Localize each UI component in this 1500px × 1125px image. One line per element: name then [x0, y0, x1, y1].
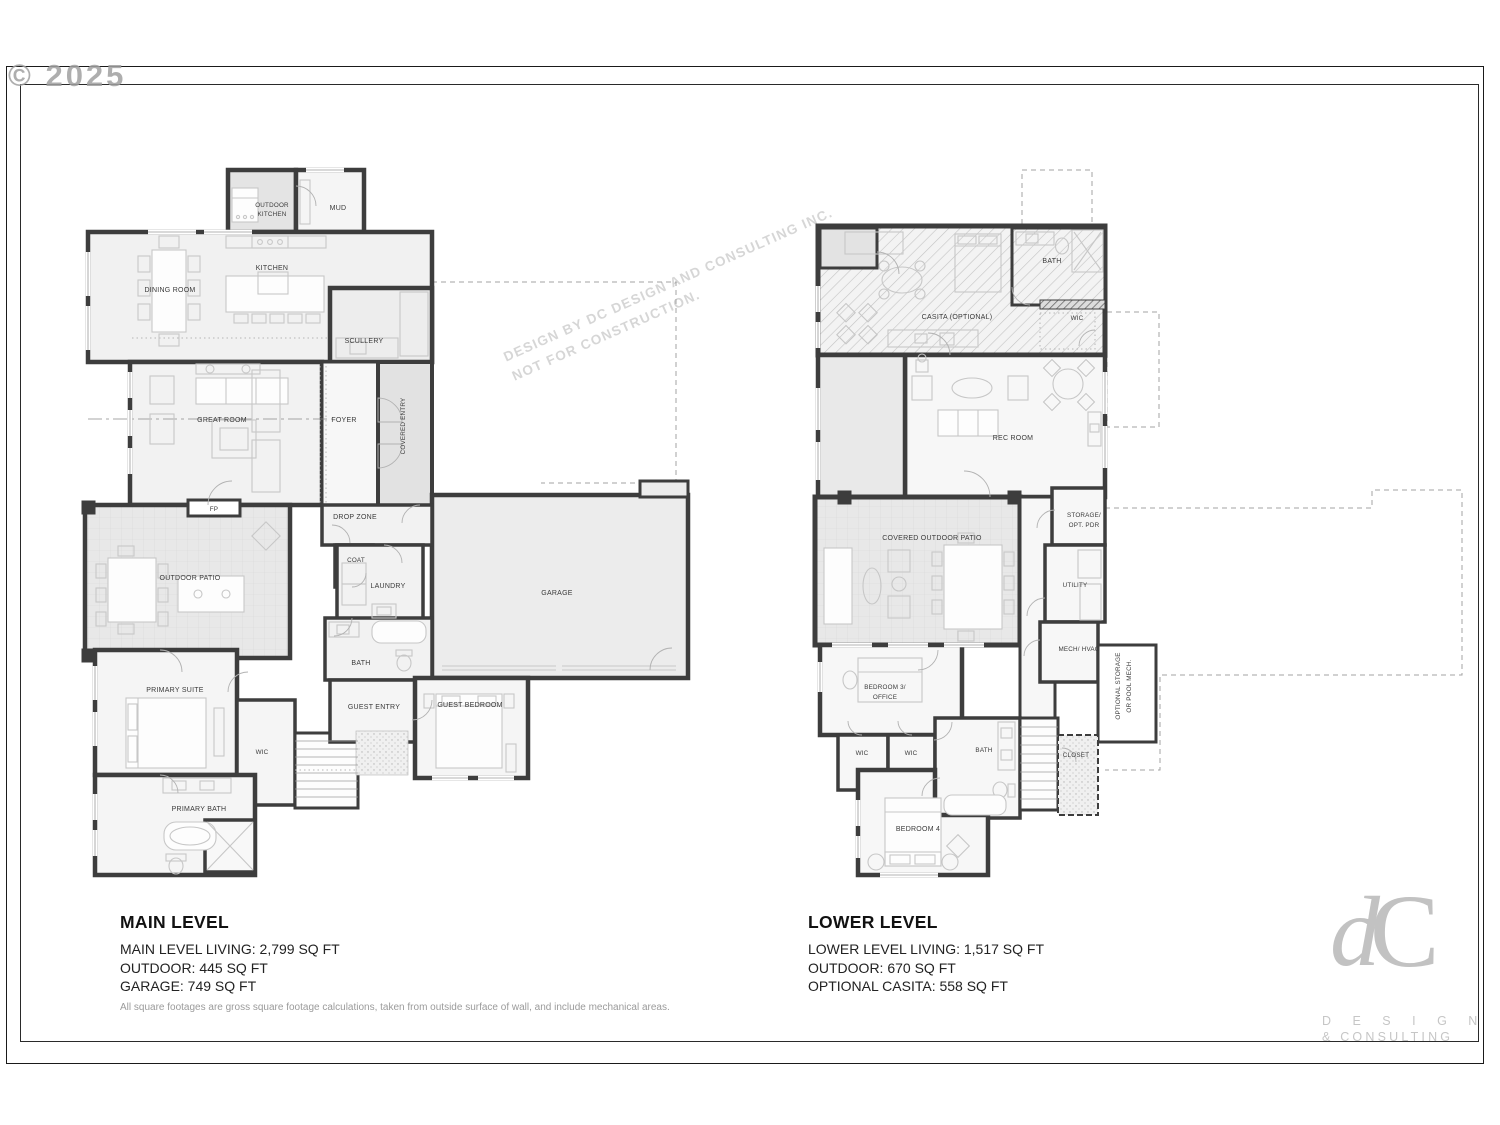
primary-bath-label: PRIMARY BATH	[172, 806, 227, 813]
kitchen-label: KITCHEN	[256, 265, 288, 272]
bedroom4-label: BEDROOM 4	[896, 826, 940, 833]
laundry-label: LAUNDRY	[370, 583, 405, 590]
covered-outdoor-patio-label: COVERED OUTDOOR PATIO	[882, 535, 982, 542]
drop-zone-label: DROP ZONE	[333, 514, 377, 521]
guest-entry-tile-floor	[356, 731, 408, 775]
bedroom3-label2: OFFICE	[873, 694, 897, 701]
scullery-label: SCULLERY	[345, 338, 384, 345]
outdoor-patio-label: OUTDOOR PATIO	[160, 575, 221, 582]
main-roof-dashed-outline	[432, 282, 676, 483]
lower-level-title: LOWER LEVEL	[808, 912, 1368, 933]
bedroom3-label1: BEDROOM 3/	[864, 684, 906, 691]
lower-level-stats-block: LOWER LEVEL LOWER LEVEL LIVING: 1,517 SQ…	[808, 912, 1368, 996]
lower-dashed-box-top	[1022, 170, 1092, 226]
lower-site-dashed-outline	[1105, 490, 1462, 770]
main-level-title: MAIN LEVEL	[120, 912, 680, 933]
guest-bedroom-label: GUEST BEDROOM	[437, 702, 502, 709]
fp-label: FP	[210, 506, 218, 513]
garage-label: GARAGE	[541, 590, 573, 597]
logo-letter-c: C	[1370, 872, 1439, 991]
utility-label: UTILITY	[1063, 582, 1088, 589]
coat-label: COAT	[347, 557, 365, 564]
dining-room-label: DINING ROOM	[145, 287, 196, 294]
plan-sheet: © 2025 DESIGN BY DC DESIGN AND CONSULTIN…	[0, 0, 1500, 1125]
outdoor-kitchen-label2: KITCHEN	[257, 211, 286, 218]
main-level-stat-outdoor: OUTDOOR: 445 SQ FT	[120, 959, 680, 978]
main-level-stat-garage: GARAGE: 749 SQ FT	[120, 977, 680, 996]
opt-storage-label2: OR POOL MECH.	[1126, 659, 1133, 712]
storage-label2: OPT. PDR	[1069, 522, 1100, 529]
main-level-plan: OUTDOOR KITCHEN MUD KITCHEN DINING ROOM …	[82, 170, 688, 875]
lower-level-stat-outdoor: OUTDOOR: 670 SQ FT	[808, 959, 1368, 978]
wic-b-label: WIC	[905, 750, 918, 757]
dc-design-logo: d C D E S I G N & CONSULTING	[1322, 888, 1464, 1044]
mech-hvac-label: MECH/ HVAC	[1058, 646, 1099, 653]
dc-logo-mark: d C	[1322, 888, 1464, 1000]
wic-a-label: WIC	[856, 750, 869, 757]
lower-level-stat-living: LOWER LEVEL LIVING: 1,517 SQ FT	[808, 940, 1368, 959]
foyer-label: FOYER	[331, 417, 356, 424]
casita-label: CASITA (OPTIONAL)	[922, 314, 993, 321]
lower-level-stat-casita: OPTIONAL CASITA: 558 SQ FT	[808, 977, 1368, 996]
mud-label: MUD	[330, 205, 347, 212]
main-level-stats-block: MAIN LEVEL MAIN LEVEL LIVING: 2,799 SQ F…	[120, 912, 680, 996]
covered-entry-label: COVERED ENTRY	[400, 397, 407, 454]
closet-label: CLOSET	[1063, 752, 1089, 759]
primary-suite-label: PRIMARY SUITE	[146, 687, 204, 694]
storage-label1: STORAGE/	[1067, 512, 1101, 519]
bath2-label: BATH	[975, 747, 992, 754]
guest-entry-label: GUEST ENTRY	[348, 704, 400, 711]
square-footage-footnote: All square footages are gross square foo…	[120, 1002, 670, 1013]
bath-label: BATH	[351, 660, 370, 667]
outdoor-kitchen-label: OUTDOOR	[255, 202, 289, 209]
rec-room-label: REC ROOM	[993, 435, 1034, 442]
wic-label: WIC	[256, 749, 269, 756]
casita-bath-label: BATH	[1042, 258, 1061, 265]
lower-level-plan: BATH CASITA (OPTIONAL) WIC REC ROOM STOR…	[815, 170, 1462, 875]
main-level-stat-living: MAIN LEVEL LIVING: 2,799 SQ FT	[120, 940, 680, 959]
great-room-label: GREAT ROOM	[197, 417, 247, 424]
lower-dashed-box-right	[1107, 312, 1159, 427]
casita-wic-label: WIC	[1071, 315, 1084, 322]
opt-storage-label1: OPTIONAL STORAGE	[1115, 652, 1122, 719]
logo-design-text: D E S I G N	[1322, 1014, 1464, 1028]
logo-consulting-text: & CONSULTING	[1322, 1030, 1464, 1044]
